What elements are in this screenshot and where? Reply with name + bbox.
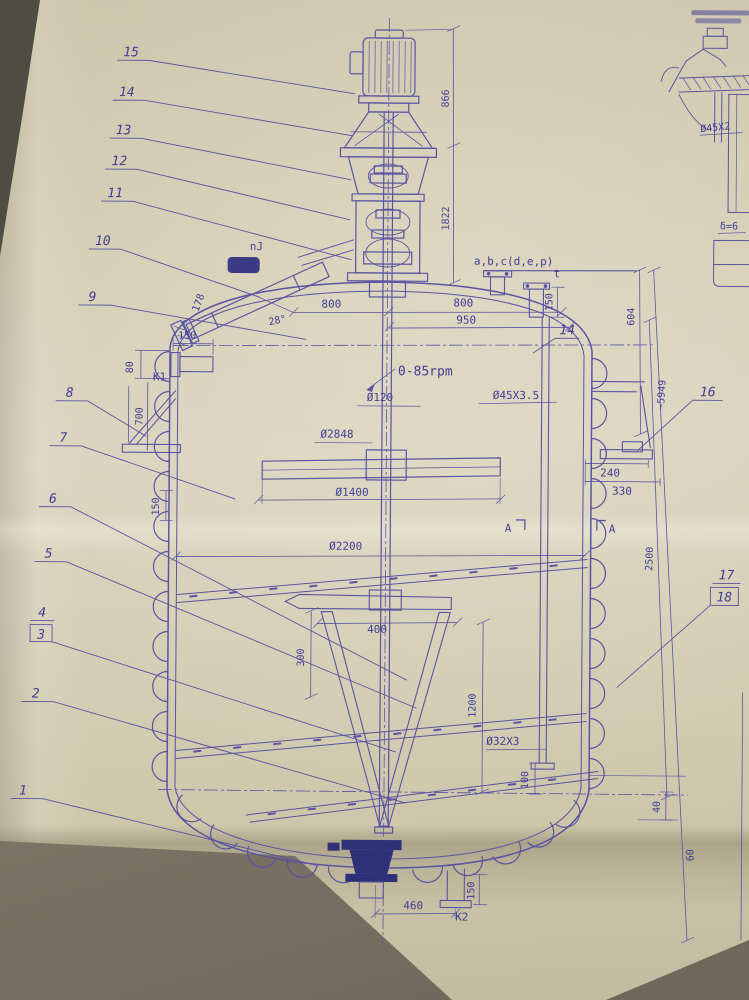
coil-pipe-underline xyxy=(479,402,557,405)
callout-4: 4 xyxy=(38,606,46,621)
dim-400: 400 xyxy=(367,623,387,636)
dim-80: 80 xyxy=(125,361,136,373)
photo-of-blueprint: 866 1822 604 a,b,c(d,e,p) t 150 800 800 … xyxy=(0,0,749,1000)
label-nozzle-group: a,b,c(d,e,p) xyxy=(474,255,554,269)
nozzle-valve-body xyxy=(228,257,260,273)
dim-240: 240 xyxy=(600,467,620,480)
callout-10: 10 xyxy=(95,234,111,249)
dim-5949: ~5949 xyxy=(656,379,669,410)
dim-150-k2: 150 xyxy=(466,882,477,900)
label-inner-dia: Ø2200 xyxy=(329,540,362,553)
callout-texts: 15 14 13 12 11 10 9 8 7 6 5 4 3 2 1 16 1… xyxy=(19,45,738,804)
callout-6: 6 xyxy=(49,492,57,507)
callout-3: 3 xyxy=(36,628,45,643)
callout-17: 17 xyxy=(719,568,735,583)
right-wall-inner xyxy=(581,355,584,789)
top-nozzle-group-abc xyxy=(483,270,637,296)
dim-700: 700 xyxy=(135,407,146,425)
label-rpm: 0-85rpm xyxy=(398,364,453,379)
dim-330: 330 xyxy=(612,485,632,498)
dim-100: 100 xyxy=(520,771,531,789)
label-nozzle-t: t xyxy=(554,267,561,280)
dim-150-coil: 150 xyxy=(151,497,162,515)
callout-7: 7 xyxy=(59,431,67,446)
dim-60: 60 xyxy=(685,849,696,861)
callout-16: 16 xyxy=(700,385,716,400)
dip-pipe xyxy=(531,317,557,769)
label-coil-pipe: Ø45X3.5 xyxy=(493,389,539,402)
callout-2: 2 xyxy=(32,687,40,702)
label-impeller-dia: Ø1400 xyxy=(335,486,368,499)
dim-line-5949 xyxy=(649,270,692,940)
dim-950: 950 xyxy=(456,314,476,327)
nozzle-k1 xyxy=(135,338,213,379)
label-angle28: 28° xyxy=(268,314,288,328)
dim-line-motor xyxy=(452,29,456,283)
dim-40: 40 xyxy=(652,801,663,813)
nozzle-k2 xyxy=(440,868,487,907)
valve-lever xyxy=(328,843,340,851)
callout-15: 15 xyxy=(123,45,139,60)
label-detail-thk: δ=6 xyxy=(720,221,738,232)
callout-18: 18 xyxy=(716,590,732,605)
label-k2: K2 xyxy=(455,911,468,924)
dim-line-800 xyxy=(293,310,561,314)
dim-line-1400 xyxy=(258,497,502,502)
diagonal-coil-strips xyxy=(175,557,600,825)
dim-line-300 xyxy=(311,612,312,698)
bottom-tangent-line xyxy=(158,789,688,795)
label-dip-pipe: Ø32X3 xyxy=(486,735,519,748)
motor-fins xyxy=(369,41,411,93)
callout-5: 5 xyxy=(45,547,53,562)
strip3-ticks xyxy=(268,777,556,816)
callout-14: 14 xyxy=(119,85,135,100)
label-k1: K1 xyxy=(153,370,166,383)
bottom-outlet-valve xyxy=(327,840,401,899)
dim-line-460 xyxy=(375,913,455,915)
motor-terminal-box xyxy=(350,52,363,74)
left-wall-outer xyxy=(167,347,170,789)
detail-view-thickness xyxy=(713,232,749,286)
label-detail-pipe: Ø45X2 xyxy=(700,120,731,135)
illegible-text-bar xyxy=(691,10,749,15)
top-tangent-line xyxy=(173,342,653,349)
label-nj: nJ xyxy=(250,240,263,253)
right-edge-line xyxy=(741,693,743,941)
label-section-a-right: A xyxy=(609,523,616,536)
dim-604: 604 xyxy=(626,308,637,326)
left-support-bracket xyxy=(122,382,180,452)
dim-line-1200 xyxy=(482,623,483,793)
dim-1200: 1200 xyxy=(467,694,478,718)
section-a-marks xyxy=(516,520,606,531)
label-vessel-od: Ø2848 xyxy=(320,428,353,441)
dim-2500: 2500 xyxy=(644,547,656,572)
right-wall-outer xyxy=(589,351,592,791)
dim-300: 300 xyxy=(296,648,307,666)
illegible-text-bar xyxy=(695,18,741,23)
dim-800-right: 800 xyxy=(453,297,473,310)
dim-line-604 xyxy=(638,270,641,434)
callout-14b: 14 xyxy=(559,323,575,338)
callout-11: 11 xyxy=(107,186,123,201)
blueprint-drawing: 866 1822 604 a,b,c(d,e,p) t 150 800 800 … xyxy=(0,0,749,1000)
callout-9: 9 xyxy=(88,290,96,305)
motor-assembly xyxy=(350,30,420,112)
right-support-bracket xyxy=(585,381,661,486)
label-shaft-dia: Ø120 xyxy=(367,391,394,404)
dim-800-left: 800 xyxy=(321,298,341,311)
callout-8: 8 xyxy=(66,386,74,401)
strip1-ticks xyxy=(189,563,557,600)
centerlines xyxy=(157,16,693,948)
dim-1822: 1822 xyxy=(441,206,452,230)
dip-pipe-underline xyxy=(486,749,546,750)
dim-150-k1: 150 xyxy=(178,331,196,342)
left-wall-inner xyxy=(175,351,178,787)
callout-1: 1 xyxy=(19,783,27,798)
section-hatch xyxy=(683,75,749,90)
callout-13: 13 xyxy=(116,123,132,138)
callout-12: 12 xyxy=(111,154,127,169)
label-section-a-left: A xyxy=(505,522,512,535)
dim-866: 866 xyxy=(441,89,452,107)
detail-view-nozzle xyxy=(660,10,749,213)
dim-150-t: 150 xyxy=(544,293,555,311)
dim-460: 460 xyxy=(403,899,423,912)
